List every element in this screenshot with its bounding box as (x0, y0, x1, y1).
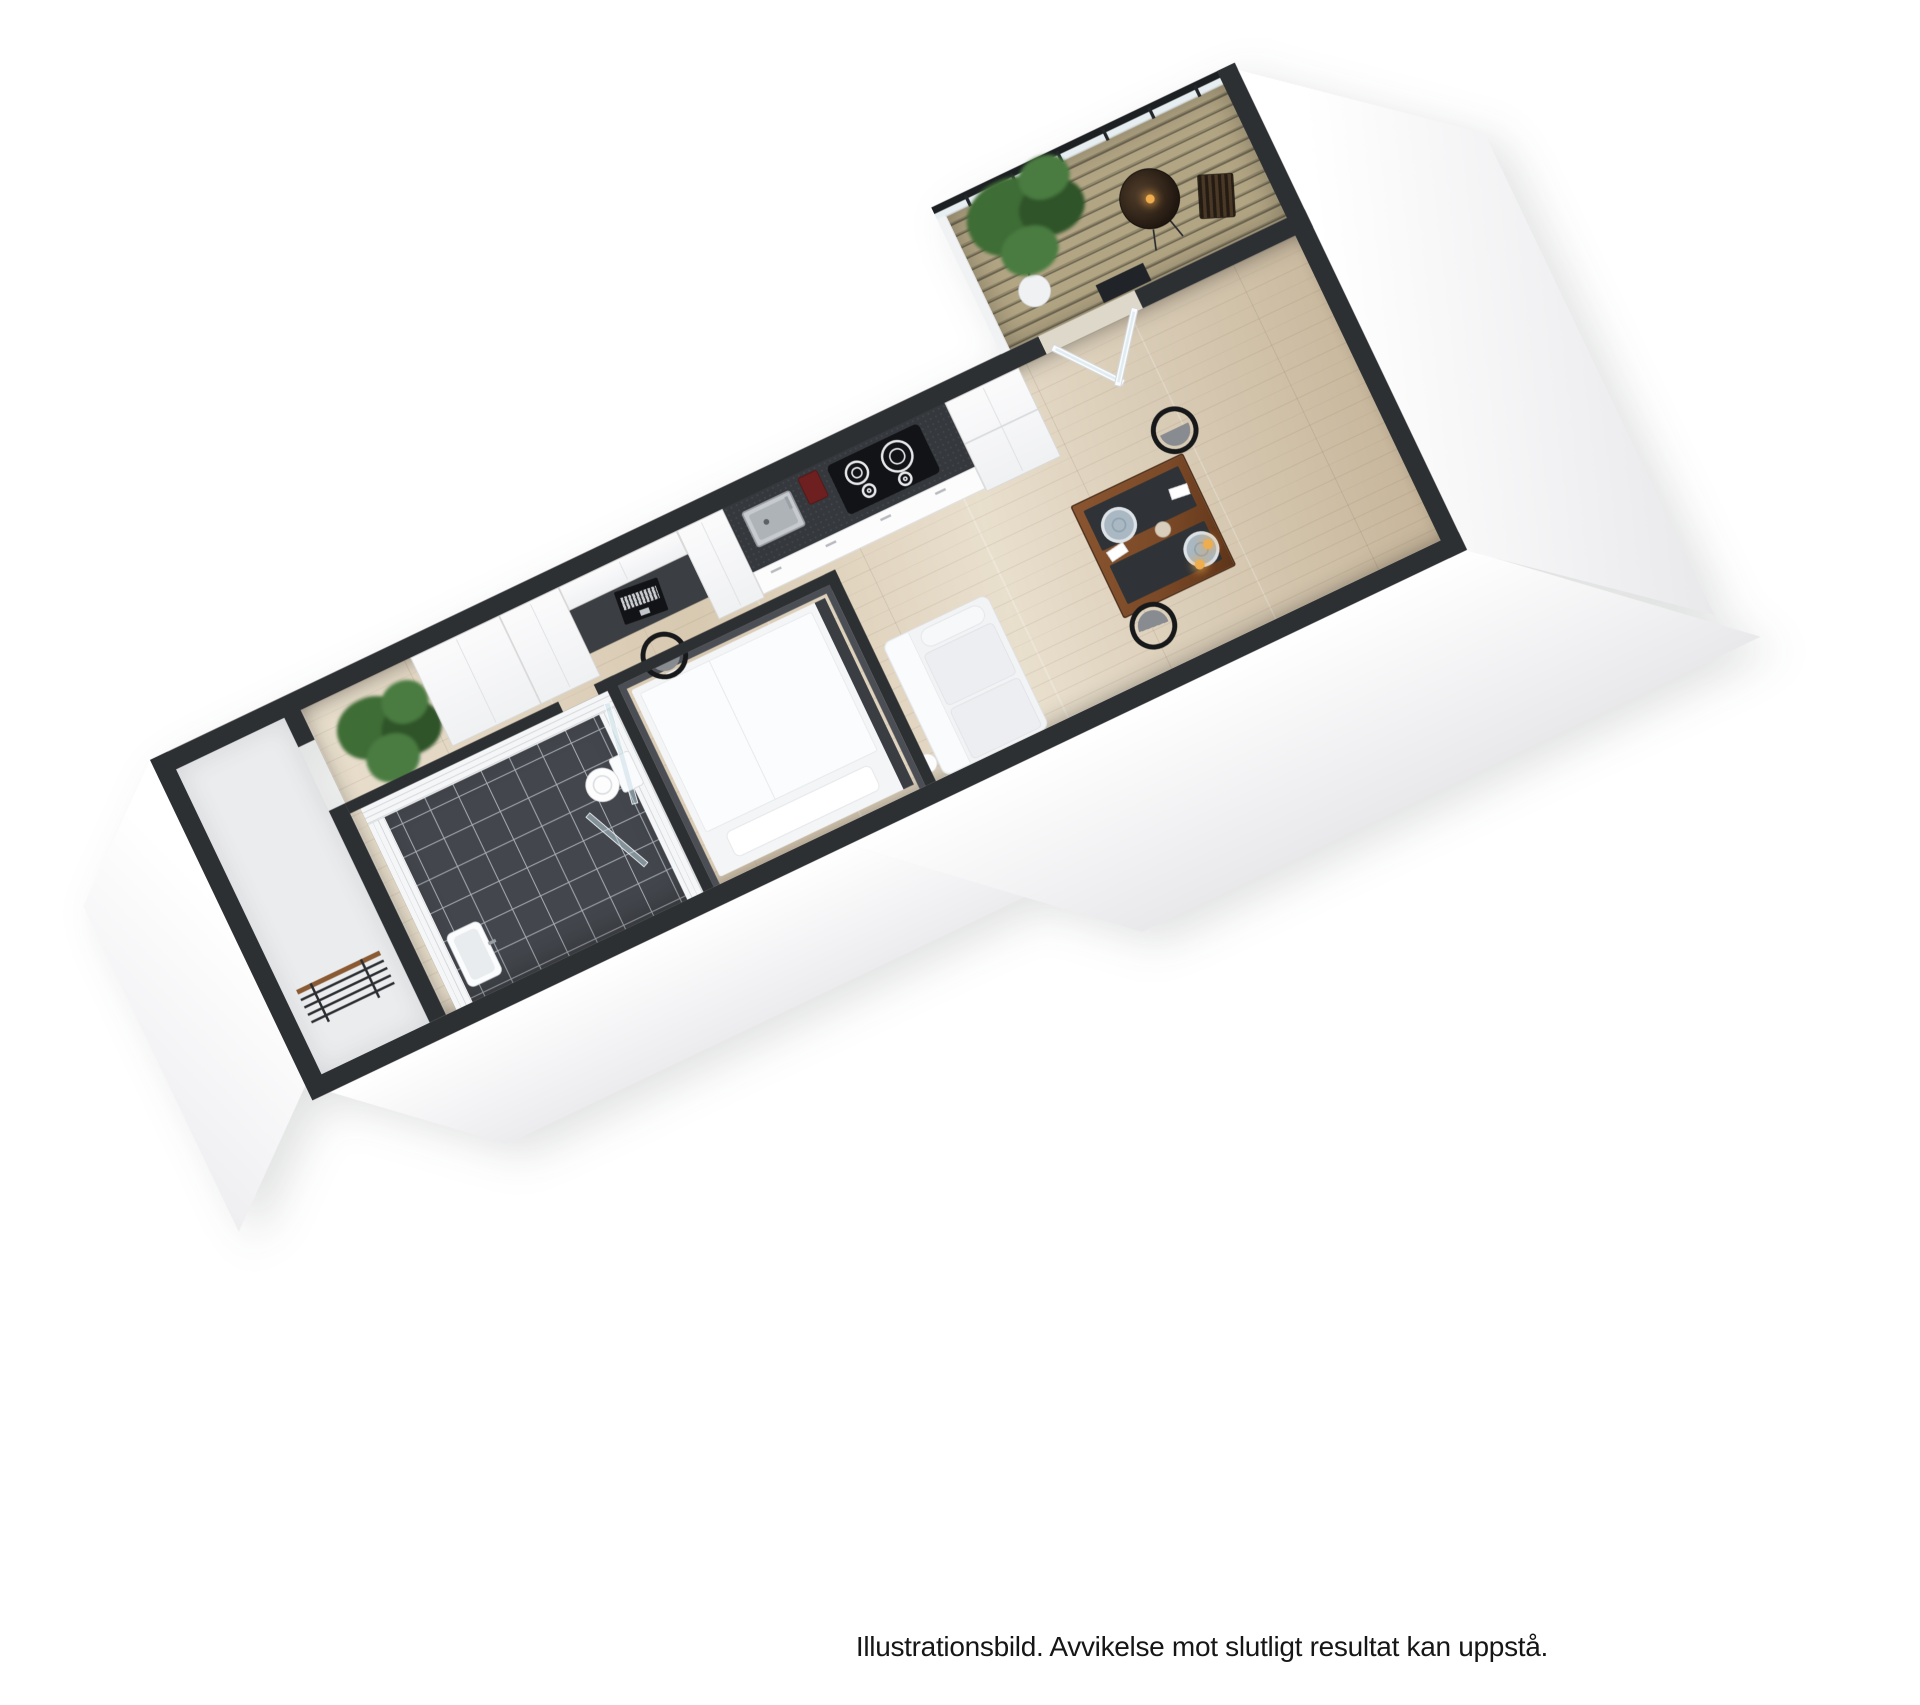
balcony-slat-chair (1197, 173, 1236, 219)
disclaimer-caption: Illustrationsbild. Avvikelse mot slutlig… (856, 1632, 1548, 1663)
floor-plan-render (150, 209, 1534, 1241)
floor-plan-illustration: Illustrationsbild. Avvikelse mot slutlig… (0, 0, 1920, 1705)
